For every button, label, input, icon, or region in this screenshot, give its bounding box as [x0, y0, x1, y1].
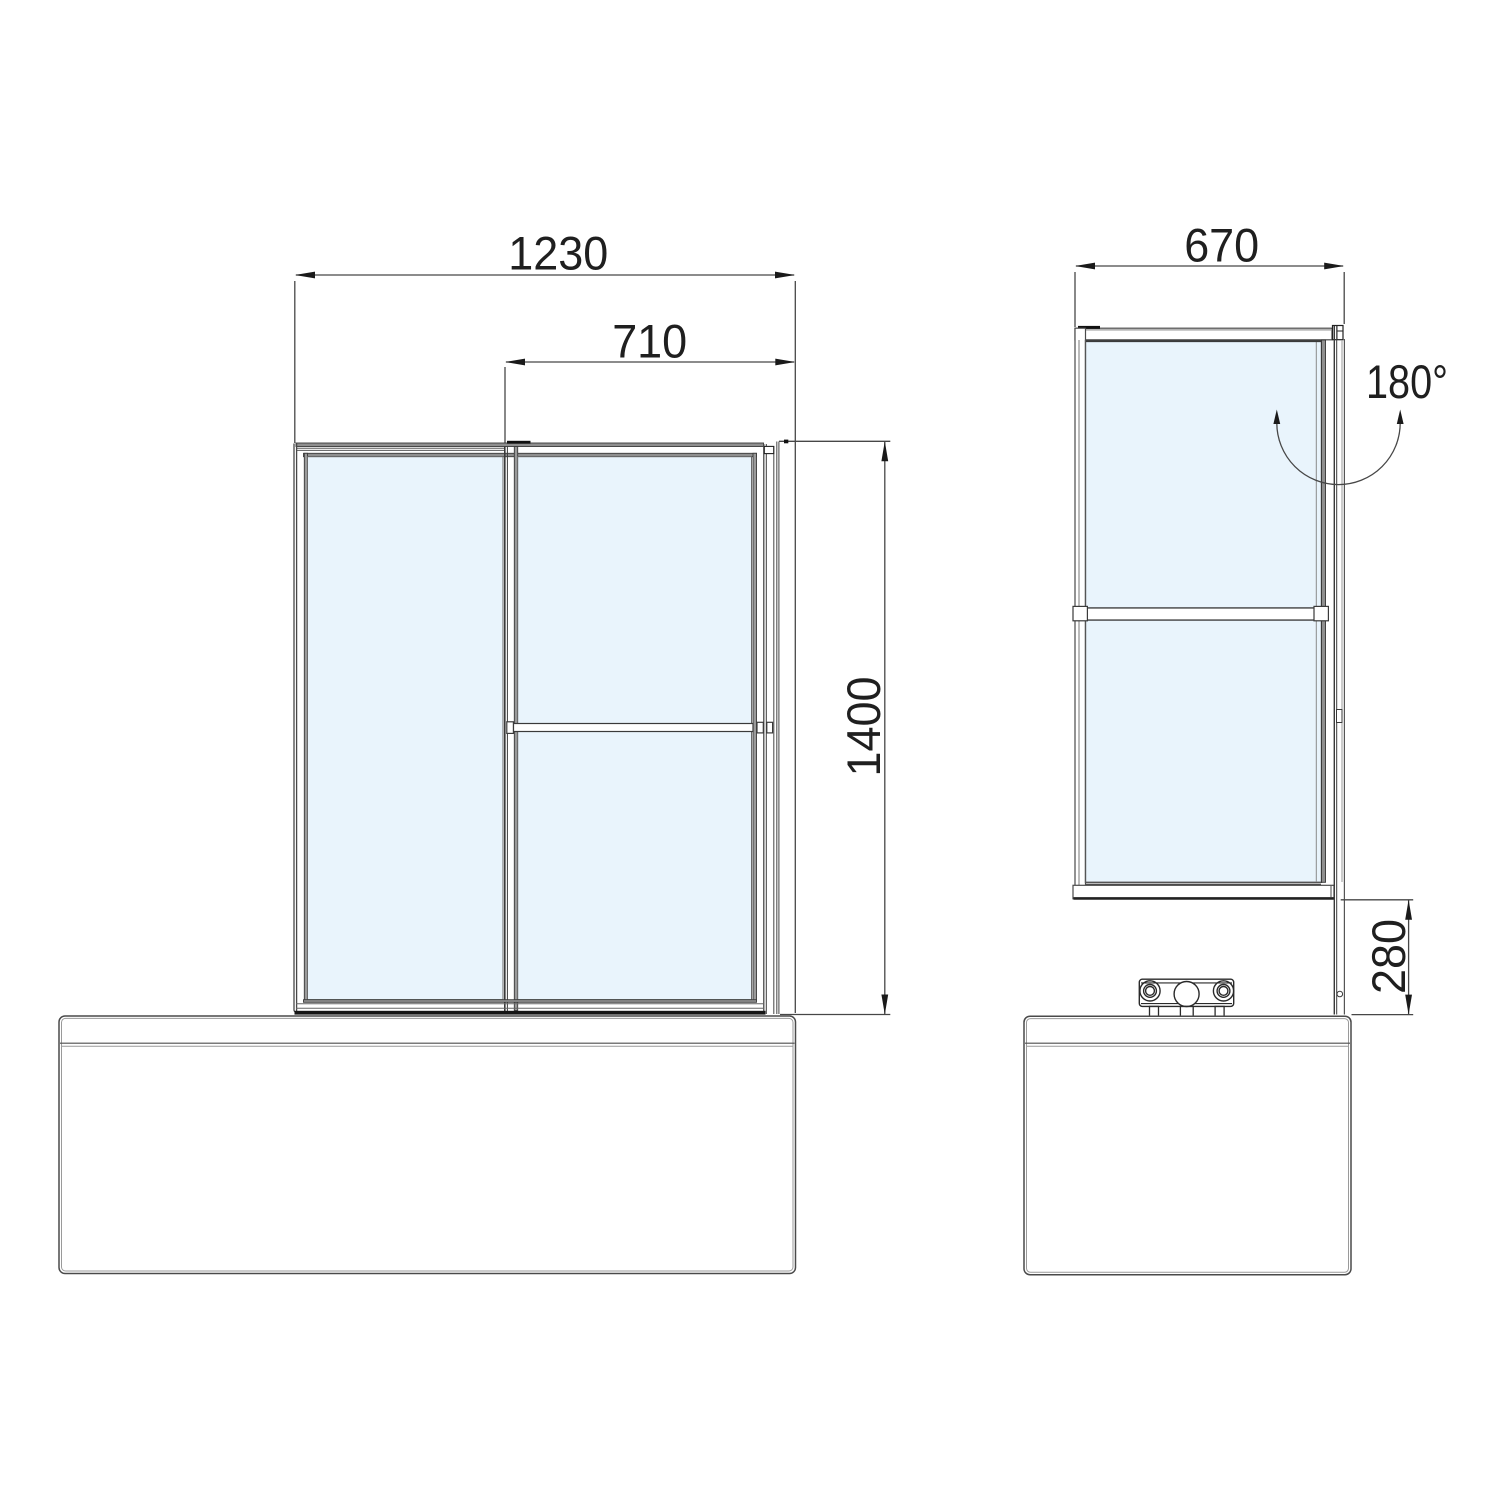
svg-text:710: 710: [612, 315, 687, 368]
svg-text:180°: 180°: [1366, 355, 1448, 408]
svg-text:280: 280: [1362, 919, 1415, 994]
svg-text:1400: 1400: [837, 677, 890, 777]
svg-text:1230: 1230: [508, 227, 608, 280]
svg-text:670: 670: [1184, 219, 1259, 272]
